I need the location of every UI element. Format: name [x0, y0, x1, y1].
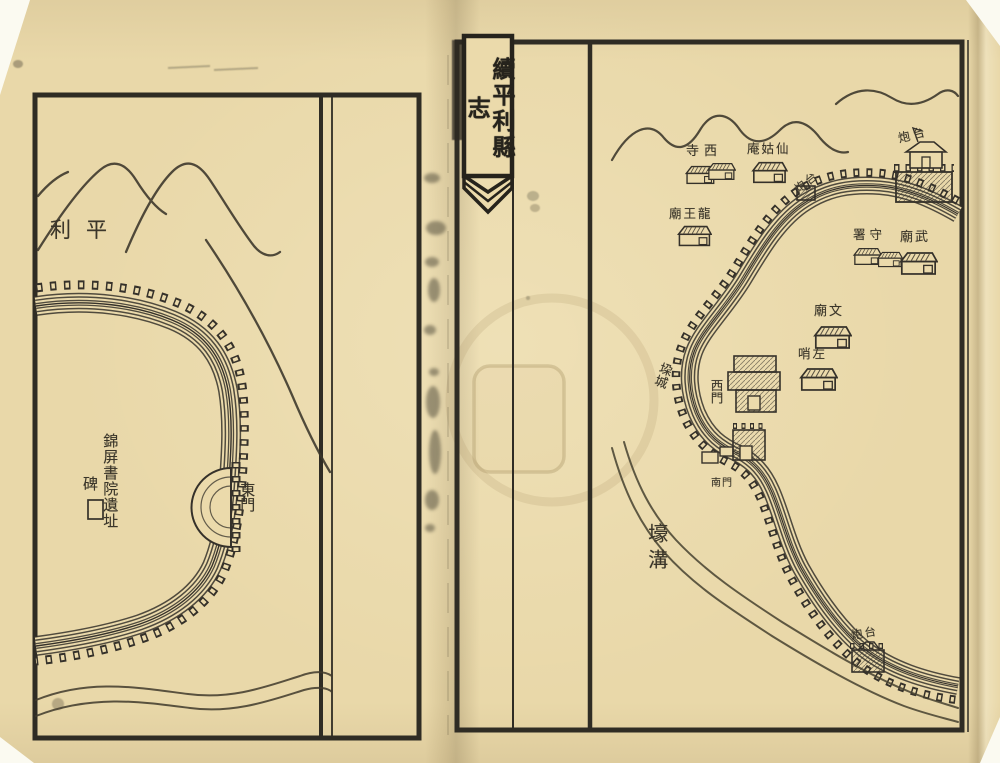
- left-picket-icon: [801, 369, 837, 390]
- west-gate-structure: [728, 356, 780, 412]
- label-moat: 壕溝: [645, 523, 667, 583]
- label-west-gate: 西門: [709, 379, 723, 413]
- xiangu-nunnery-icon: [753, 163, 787, 183]
- archive-watermark: [450, 298, 654, 502]
- label-east-gate: 東門: [239, 482, 255, 522]
- garrison-office-icon: [854, 249, 881, 265]
- label-west-temple: 寺西: [686, 145, 722, 159]
- label-martial-temple: 廟武: [900, 231, 930, 245]
- label-jinping-academy-site: 錦屏書院遺址: [102, 433, 118, 535]
- fold-smudges: [424, 173, 446, 532]
- label-south-gate: 南門: [711, 479, 733, 490]
- label-left-picket: 哨左: [798, 347, 827, 361]
- civil-temple-icon: [815, 327, 851, 348]
- left-page-river: [36, 672, 332, 716]
- label-civil-temple: 廟文: [814, 305, 844, 319]
- label-garrison-office: 署守: [853, 228, 886, 242]
- banner-title: 續平利縣志: [467, 46, 513, 172]
- east-gate-arch: [192, 462, 236, 552]
- label-xiangu-nunnery: 庵姑仙: [747, 142, 791, 156]
- label-pingli-region: 利平: [50, 219, 122, 242]
- label-dragon-king-temple: 廟王龍: [669, 207, 713, 221]
- martial-temple-icon: [901, 253, 937, 274]
- garrison-office-icon-2: [878, 252, 902, 266]
- right-page-city-wall: [676, 173, 958, 700]
- label-stele: 碑: [83, 476, 98, 492]
- gazetteer-map-spread: 續平利縣志 利平 錦屏書院遺址 碑 東門 寺西 庵姑仙 廟王龍 炮台 炮台 署守…: [0, 0, 1000, 763]
- stray-marks: [13, 60, 540, 710]
- west-temple-icon-2: [708, 164, 735, 180]
- dragon-king-temple-icon: [679, 227, 712, 246]
